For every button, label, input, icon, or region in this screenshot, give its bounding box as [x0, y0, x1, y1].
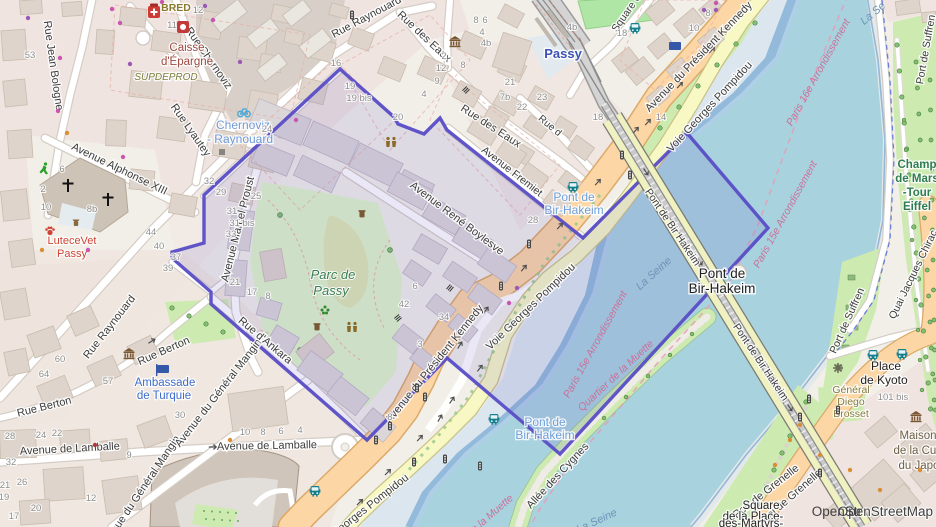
svg-text:28: 28 — [5, 431, 16, 442]
svg-text:44: 44 — [146, 227, 157, 238]
svg-text:12: 12 — [86, 493, 97, 504]
svg-text:18: 18 — [617, 28, 628, 39]
svg-text:Caisse: Caisse — [169, 42, 204, 54]
svg-text:12: 12 — [436, 63, 447, 74]
svg-text:2: 2 — [40, 184, 45, 195]
svg-text:8b: 8b — [87, 204, 98, 215]
svg-text:Bir-Hakeim: Bir-Hakeim — [544, 203, 603, 217]
svg-text:34: 34 — [439, 312, 450, 323]
svg-text:4b: 4b — [567, 22, 578, 33]
svg-text:8: 8 — [387, 412, 392, 423]
svg-text:19 bis: 19 bis — [346, 93, 372, 104]
svg-text:20: 20 — [393, 112, 404, 123]
svg-text:11: 11 — [167, 20, 177, 31]
svg-text:17: 17 — [247, 287, 258, 298]
svg-text:57: 57 — [103, 376, 114, 387]
svg-text:2: 2 — [441, 51, 446, 62]
svg-text:LuteceVet: LuteceVet — [48, 235, 97, 247]
svg-text:4: 4 — [479, 27, 484, 38]
svg-text:10: 10 — [689, 23, 700, 34]
svg-text:42: 42 — [399, 299, 410, 310]
svg-text:40: 40 — [154, 241, 165, 252]
svg-text:17: 17 — [9, 511, 20, 522]
svg-text:20: 20 — [31, 503, 42, 514]
svg-text:d'Épargne: d'Épargne — [161, 55, 213, 68]
svg-text:24: 24 — [36, 430, 47, 441]
svg-text:37: 37 — [171, 252, 182, 263]
svg-text:Eiffel: Eiffel — [903, 201, 931, 213]
svg-text:de la Cultu: de la Cultu — [894, 445, 936, 457]
svg-text:des-Martyrs-: des-Martyrs- — [719, 518, 784, 527]
svg-text:10: 10 — [240, 427, 251, 438]
svg-text:32: 32 — [6, 457, 17, 468]
svg-text:53: 53 — [25, 50, 36, 61]
svg-text:Passy: Passy — [313, 283, 350, 298]
svg-text:de Kyoto: de Kyoto — [860, 373, 908, 387]
svg-text:21: 21 — [230, 277, 241, 288]
svg-text:22: 22 — [517, 102, 528, 113]
svg-text:8: 8 — [460, 60, 465, 71]
svg-text:19: 19 — [345, 81, 356, 92]
svg-text:31: 31 — [227, 206, 238, 217]
svg-text:64: 64 — [39, 369, 50, 380]
svg-text:4: 4 — [421, 89, 426, 100]
svg-text:6: 6 — [278, 426, 283, 437]
svg-text:7b: 7b — [500, 92, 511, 103]
svg-text:21: 21 — [0, 480, 10, 491]
svg-text:de Mars: de Mars — [895, 173, 936, 185]
svg-text:23: 23 — [537, 92, 548, 103]
svg-text:26: 26 — [17, 477, 28, 488]
svg-text:28: 28 — [528, 215, 539, 226]
svg-text:12: 12 — [193, 5, 204, 16]
svg-text:Bir-Hakeim: Bir-Hakeim — [515, 428, 574, 442]
svg-text:8: 8 — [473, 15, 478, 26]
svg-text:24: 24 — [262, 124, 273, 135]
svg-text:60: 60 — [55, 354, 66, 365]
svg-text:de Turquie: de Turquie — [137, 390, 191, 402]
svg-text:29: 29 — [216, 187, 227, 198]
svg-text:Parc de: Parc de — [311, 267, 356, 282]
svg-text:Bir-Hakeim: Bir-Hakeim — [689, 281, 756, 296]
svg-text:14: 14 — [656, 112, 667, 123]
svg-text:8: 8 — [265, 291, 270, 302]
svg-text:6: 6 — [482, 15, 487, 26]
svg-text:39: 39 — [163, 263, 174, 274]
svg-text:10: 10 — [41, 202, 52, 213]
svg-text:19: 19 — [0, 492, 9, 503]
svg-text:8: 8 — [260, 427, 265, 438]
svg-text:6: 6 — [59, 164, 64, 175]
svg-text:33: 33 — [226, 229, 237, 240]
svg-text:31 bis: 31 bis — [229, 218, 255, 229]
svg-text:OpenStr: OpenStr — [812, 504, 863, 519]
svg-text:25: 25 — [251, 191, 262, 202]
svg-text:22: 22 — [52, 428, 63, 439]
svg-text:4b: 4b — [481, 38, 492, 49]
svg-text:101 bis: 101 bis — [878, 392, 909, 403]
svg-text:9: 9 — [126, 450, 131, 461]
svg-text:32: 32 — [204, 176, 215, 187]
svg-text:21: 21 — [505, 77, 516, 88]
svg-text:Place: Place — [871, 359, 901, 373]
svg-text:4: 4 — [297, 425, 302, 436]
svg-text:Pont de: Pont de — [524, 415, 566, 429]
svg-text:30: 30 — [175, 410, 186, 421]
svg-text:-Tour: -Tour — [903, 187, 932, 199]
svg-text:du Japo: du Japo — [899, 460, 936, 472]
svg-text:BRED: BRED — [161, 2, 191, 14]
svg-text:3: 3 — [417, 339, 422, 350]
svg-text:Diego: Diego — [837, 396, 865, 408]
svg-text:Passy: Passy — [544, 46, 582, 61]
svg-text:Ambassade: Ambassade — [135, 377, 196, 389]
svg-text:Champ: Champ — [898, 159, 936, 171]
svg-text:Pont de: Pont de — [699, 266, 746, 281]
svg-text:Maison: Maison — [899, 430, 936, 442]
svg-text:16: 16 — [331, 58, 342, 69]
svg-text:6: 6 — [412, 281, 417, 292]
svg-text:SUPDEPROD: SUPDEPROD — [134, 72, 197, 83]
svg-text:18: 18 — [593, 112, 604, 123]
svg-text:Passy: Passy — [57, 248, 87, 260]
svg-text:9: 9 — [434, 76, 439, 87]
